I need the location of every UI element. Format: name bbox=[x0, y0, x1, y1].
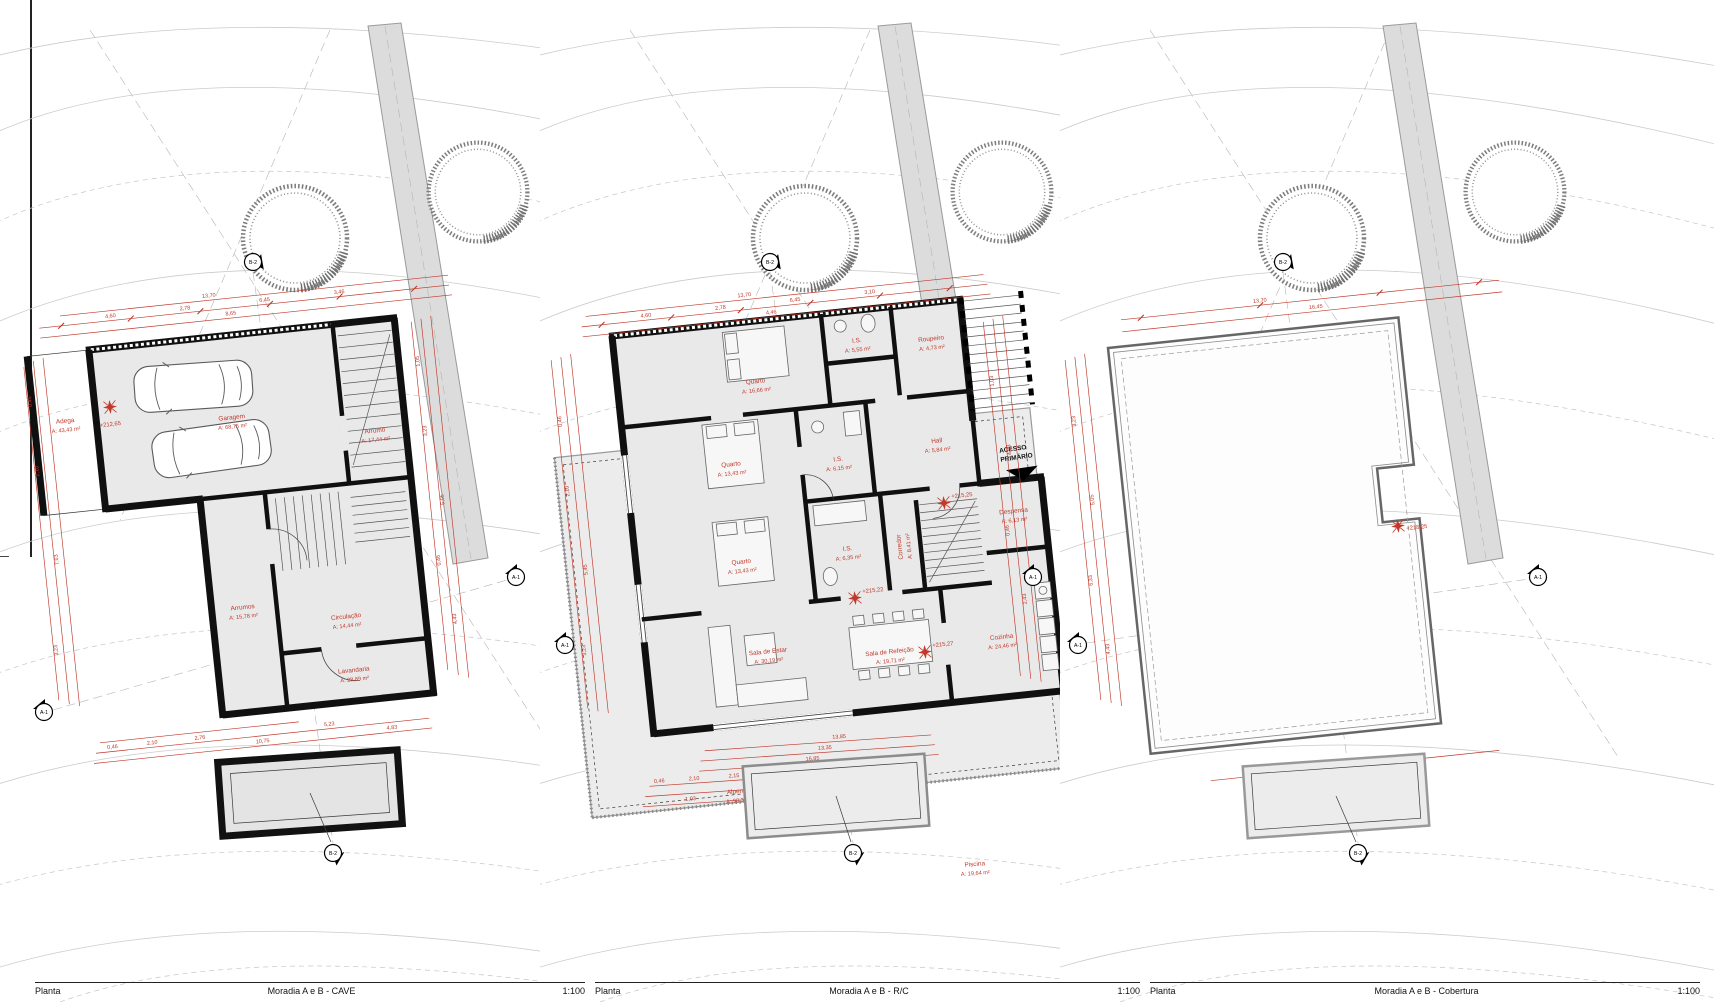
svg-text:3,23: 3,23 bbox=[53, 645, 60, 656]
svg-text:3,10: 3,10 bbox=[864, 289, 875, 296]
tree bbox=[953, 143, 1052, 242]
svg-text:2,76: 2,76 bbox=[194, 735, 205, 742]
svg-text:2,10: 2,10 bbox=[564, 485, 571, 496]
svg-text:13,70: 13,70 bbox=[737, 292, 751, 299]
section-marker-right: A-1 bbox=[505, 564, 525, 586]
svg-text:0,46: 0,46 bbox=[654, 778, 665, 785]
svg-text:4,43: 4,43 bbox=[1105, 643, 1112, 654]
svg-text:Piscina: Piscina bbox=[964, 860, 985, 868]
svg-text:2,78: 2,78 bbox=[715, 305, 726, 312]
svg-text:B-2: B-2 bbox=[1354, 851, 1362, 857]
drawing-sheet: Adega A: 43,43 m² Garagem A: 68,75 m² Ar… bbox=[0, 0, 1714, 1002]
building-rc: Quarto A: 16,66 m² I.S. A: 5,55 m² Roupe… bbox=[542, 291, 1060, 818]
titleblock-rc: Planta Moradia A e B - R/C 1:100 bbox=[595, 982, 1140, 998]
title-name: Moradia A e B - R/C bbox=[829, 986, 909, 996]
svg-text:10,75: 10,75 bbox=[256, 738, 270, 745]
svg-text:1,03: 1,03 bbox=[989, 376, 996, 387]
title-kind: Planta bbox=[35, 986, 61, 996]
svg-text:0,46: 0,46 bbox=[107, 744, 118, 751]
tree bbox=[243, 186, 347, 290]
svg-text:2,43: 2,43 bbox=[1022, 593, 1029, 604]
svg-text:A-1: A-1 bbox=[1534, 575, 1542, 581]
svg-text:A: 43,43 m²: A: 43,43 m² bbox=[51, 426, 81, 435]
svg-text:4,03: 4,03 bbox=[1006, 444, 1013, 455]
svg-text:5,05: 5,05 bbox=[439, 494, 446, 505]
svg-text:0,46: 0,46 bbox=[436, 555, 443, 566]
svg-text:1,03: 1,03 bbox=[685, 796, 696, 803]
svg-text:13,35: 13,35 bbox=[818, 745, 832, 752]
section-marker-left: A-1 bbox=[554, 632, 574, 654]
svg-text:B-2: B-2 bbox=[1279, 260, 1287, 266]
title-name: Moradia A e B - CAVE bbox=[268, 986, 356, 996]
svg-text:1,05: 1,05 bbox=[415, 356, 422, 367]
svg-text:8,65: 8,65 bbox=[225, 311, 236, 318]
title-name: Moradia A e B - Cobertura bbox=[1374, 986, 1478, 996]
svg-text:2,15: 2,15 bbox=[728, 773, 739, 780]
svg-text:B-2: B-2 bbox=[329, 851, 337, 857]
tree bbox=[1466, 143, 1565, 242]
tree bbox=[429, 143, 528, 242]
svg-text:6,45: 6,45 bbox=[789, 297, 800, 304]
svg-text:4,83: 4,83 bbox=[386, 725, 397, 732]
section-marker-bottom: B-2 bbox=[1347, 841, 1373, 868]
svg-text:0,46: 0,46 bbox=[27, 396, 34, 407]
title-kind: Planta bbox=[595, 986, 621, 996]
title-scale: 1:100 bbox=[1117, 986, 1140, 996]
svg-text:3,23: 3,23 bbox=[1071, 416, 1078, 427]
titleblock-cobertura: Planta Moradia A e B - Cobertura 1:100 bbox=[1150, 982, 1700, 998]
svg-text:4,60: 4,60 bbox=[105, 313, 116, 320]
svg-text:3,23: 3,23 bbox=[581, 645, 588, 656]
tree bbox=[753, 186, 857, 290]
svg-text:Hall: Hall bbox=[931, 437, 943, 445]
titleblock-cave: Planta Moradia A e B - CAVE 1:100 bbox=[35, 982, 585, 998]
tree bbox=[1260, 186, 1364, 290]
svg-text:3,46: 3,46 bbox=[334, 289, 345, 296]
svg-text:A-1: A-1 bbox=[512, 575, 520, 581]
svg-text:2,78: 2,78 bbox=[179, 305, 190, 312]
svg-text:A-1: A-1 bbox=[1074, 643, 1082, 649]
svg-text:16,45: 16,45 bbox=[1309, 304, 1323, 311]
section-marker-right: A-1 bbox=[1527, 564, 1547, 586]
svg-text:0,46: 0,46 bbox=[1005, 525, 1012, 536]
svg-text:5,05: 5,05 bbox=[1089, 494, 1096, 505]
svg-text:6,33: 6,33 bbox=[1088, 575, 1095, 586]
svg-text:A-1: A-1 bbox=[1029, 575, 1037, 581]
title-scale: 1:100 bbox=[562, 986, 585, 996]
section-marker-bottom: B-2 bbox=[842, 841, 868, 868]
svg-text:5,23: 5,23 bbox=[324, 721, 335, 728]
svg-text:13,85: 13,85 bbox=[832, 734, 846, 741]
svg-text:B-2: B-2 bbox=[766, 260, 774, 266]
roof-outline bbox=[1108, 317, 1441, 753]
plan-rc: Quarto A: 16,66 m² I.S. A: 5,55 m² Roupe… bbox=[540, 0, 1060, 1002]
title-scale: 1:100 bbox=[1677, 986, 1700, 996]
svg-text:4,43: 4,43 bbox=[452, 613, 459, 624]
svg-text:A-1: A-1 bbox=[40, 710, 48, 716]
svg-text:I.S.: I.S. bbox=[833, 456, 843, 464]
svg-text:13,70: 13,70 bbox=[202, 293, 216, 300]
svg-text:I.S.: I.S. bbox=[852, 337, 862, 345]
plan-cave: Adega A: 43,43 m² Garagem A: 68,75 m² Ar… bbox=[0, 0, 540, 1002]
svg-text:13,70: 13,70 bbox=[1253, 298, 1267, 305]
svg-text:+218,25: +218,25 bbox=[1406, 524, 1428, 532]
building-cave: Adega A: 43,43 m² Garagem A: 68,75 m² Ar… bbox=[27, 318, 437, 735]
plan-cobertura: +218,25 13,70 16,45 3,23 5,05 6,33 4,43 … bbox=[1060, 0, 1714, 1002]
svg-text:2,10: 2,10 bbox=[147, 740, 158, 747]
svg-text:2,10: 2,10 bbox=[34, 466, 41, 477]
room-label-piscina: Piscina A: 19,64 m² bbox=[960, 860, 990, 878]
svg-text:2,10: 2,10 bbox=[689, 776, 700, 783]
svg-text:6,45: 6,45 bbox=[259, 297, 270, 304]
svg-text:I.S.: I.S. bbox=[842, 545, 852, 553]
section-marker-left: A-1 bbox=[33, 699, 53, 721]
title-kind: Planta bbox=[1150, 986, 1176, 996]
svg-text:7,63: 7,63 bbox=[54, 554, 61, 565]
svg-text:A-1: A-1 bbox=[561, 643, 569, 649]
section-marker-left: A-1 bbox=[1067, 632, 1087, 654]
svg-text:B-2: B-2 bbox=[249, 260, 257, 266]
svg-text:A: 19,64 m²: A: 19,64 m² bbox=[961, 870, 990, 878]
svg-text:3,23: 3,23 bbox=[422, 425, 429, 436]
svg-text:0,46: 0,46 bbox=[557, 416, 564, 427]
section-marker-bottom: B-2 bbox=[322, 841, 348, 868]
svg-text:5,45: 5,45 bbox=[583, 564, 590, 575]
room-label: Adega bbox=[56, 417, 76, 426]
svg-text:B-2: B-2 bbox=[849, 851, 857, 857]
svg-text:4,46: 4,46 bbox=[766, 309, 777, 316]
svg-text:4,60: 4,60 bbox=[640, 313, 651, 320]
